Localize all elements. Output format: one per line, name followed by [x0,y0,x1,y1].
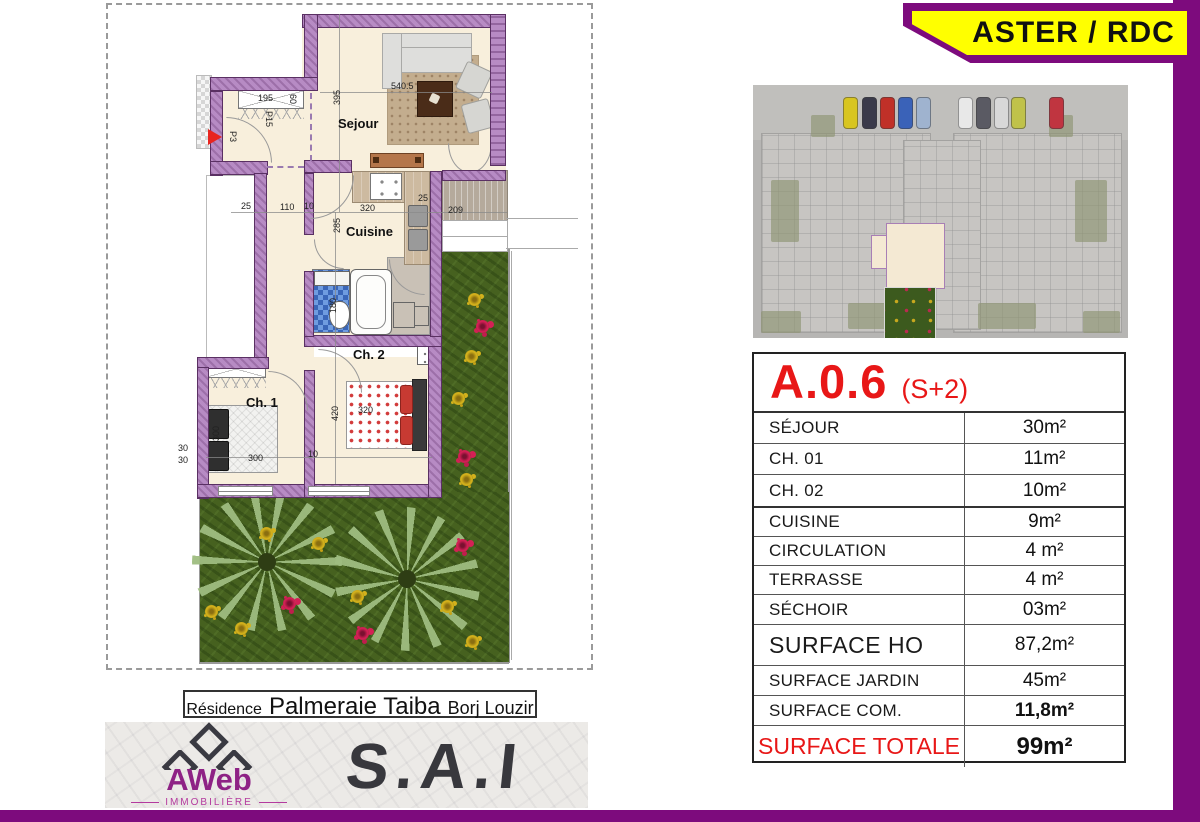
parked-car [862,97,877,129]
surface-row-value: 10m² [965,475,1124,506]
wall [304,160,352,173]
parked-car [916,97,931,129]
parked-car [898,97,913,129]
site-plan-green [761,311,801,333]
room-label: Ch. 1 [246,395,278,410]
dimension-label: 320 [360,203,375,213]
bathtub [350,269,392,335]
dimension-line [339,14,340,212]
unit-suffix: (S+2) [901,374,968,405]
wall [197,367,209,499]
unit-number: A.0.6 [770,356,887,408]
surface-row: SÉCHOIR03m² [754,595,1124,625]
site-plan-green [771,180,799,242]
surface-row-label: TERRASSE [754,566,965,594]
aweb-wordmark: AWeb [119,764,299,795]
site-plan-green [811,115,835,137]
site-plan-green [978,303,1036,329]
wall [428,335,442,498]
residence-title: Résidence Palmeraie Taiba Borj Louzir [183,690,537,718]
dimension-line [335,212,336,484]
aweb-subtitle: IMMOBILIÈRE [119,797,299,808]
surface-row: CH. 0111m² [754,444,1124,475]
surface-row-label: CH. 02 [754,475,965,506]
coffee-table [417,81,453,117]
surface-row-value: 11m² [965,444,1124,474]
terrace-steps [442,220,508,252]
surface-row-value: 45m² [965,666,1124,695]
surface-row: SURFACE HO87,2m² [754,625,1124,666]
flower [260,527,273,540]
dimension-label: 285 [332,218,342,233]
wall [490,14,506,166]
parked-car [958,97,973,129]
opening-dashed [267,166,304,168]
dimension-label: P3 [228,131,238,142]
room-label: Ch. 2 [353,347,385,362]
pillow [208,441,229,471]
surface-row: TERRASSE4 m² [754,566,1124,595]
bottom-frame-bar [0,810,1200,822]
dimension-label: 300 [248,453,263,463]
window [308,486,370,496]
flower [351,590,364,603]
site-plan-unit-garden [884,287,936,338]
site-plan [753,85,1128,338]
dimension-label: 30 [178,455,188,465]
surface-row: SURFACE COM.11,8m² [754,696,1124,726]
wall [254,173,267,365]
parked-car [843,97,858,129]
stove [370,173,402,200]
flower [356,627,369,640]
surface-row-label: CH. 01 [754,444,965,474]
dimension-label: 110 [280,202,294,212]
surface-row: SURFACE TOTALE99m² [754,726,1124,767]
surface-row-label: SÉJOUR [754,413,965,443]
surface-row-value: 4 m² [965,566,1124,594]
surface-row: SURFACE JARDIN45m² [754,666,1124,696]
sai-wordmark: S.A.I [286,724,585,808]
plan-type-banner: ASTER / RDC [903,3,1196,63]
surface-row-value: 9m² [965,508,1124,536]
right-frame-bar [1173,0,1200,822]
parked-car [1049,97,1064,129]
dimension-label: 60 [288,94,298,104]
wall [302,14,505,28]
flower [458,450,471,463]
flower [235,622,248,635]
surface-row: SÉJOUR30m² [754,413,1124,444]
dimension-label: 25 [241,201,251,211]
surface-row-label: SURFACE COM. [754,696,965,725]
washing-machine [393,302,415,328]
surface-table: A.0.6 (S+2) SÉJOUR30m²CH. 0111m²CH. 0210… [752,352,1126,763]
parked-car [994,97,1009,129]
wall [304,370,315,498]
surface-row-label: CIRCULATION [754,537,965,565]
walkway-line [506,218,578,219]
dimension-label: 300 [211,426,221,441]
flower [452,392,465,405]
wall [442,170,506,181]
dimension-label: 30 [178,443,188,453]
surface-row-value: 11,8m² [965,696,1124,725]
unit-title-row: A.0.6 (S+2) [754,354,1124,413]
residence-prefix: Résidence [186,701,262,719]
site-plan-unit-highlight [886,223,945,289]
parked-car [1011,97,1026,129]
surface-row-value: 99m² [965,726,1124,767]
dimension-label: 540.5 [391,81,414,91]
dimension-label: 180 [328,298,338,313]
window [218,486,273,496]
garden-path-line [511,251,512,660]
wall [304,271,314,337]
flower [205,605,218,618]
residence-suffix: Borj Louzir [448,698,534,719]
site-plan-green [1083,311,1120,333]
brochure-page: ASTER / RDC A.0.6 (S+2) SÉJOUR30m²CH. 01… [0,0,1200,822]
wall [210,77,318,91]
flower [466,635,479,648]
floor-plan: SejourCuisineCh. 2Ch. 119560P15P3395540.… [106,3,593,670]
pillow [400,385,413,414]
walkway-line [506,248,578,249]
entrance-arrow [208,129,222,145]
flower [468,293,481,306]
bathroom-sink [314,271,350,286]
bed-ch2-headboard [412,379,427,451]
dimension-label: 10 [308,449,318,459]
parked-car [976,97,991,129]
flower [441,600,454,613]
opening-dashed [310,93,312,161]
banner-label: ASTER / RDC [924,16,1175,50]
surface-row-value: 87,2m² [965,625,1124,665]
aweb-logo: AWeb IMMOBILIÈRE [119,724,299,808]
residence-name: Palmeraie Taiba [269,693,441,721]
dimension-label: P15 [264,111,274,127]
surface-row-label: SURFACE HO [754,625,965,665]
console-bench [370,153,424,168]
flower [283,597,296,610]
room-label: Sejour [338,116,378,131]
dimension-label: 420 [330,406,340,421]
surface-row-label: CUISINE [754,508,965,536]
surface-row-value: 4 m² [965,537,1124,565]
surface-row-label: SURFACE JARDIN [754,666,965,695]
washing-machine [414,306,429,326]
surface-row: CIRCULATION4 m² [754,537,1124,566]
dimension-label: 209 [448,205,463,215]
pillow [400,416,413,445]
wall [430,171,442,337]
surface-row-value: 30m² [965,413,1124,443]
surface-row: CH. 0210m² [754,475,1124,508]
flower [460,473,473,486]
room-label: Cuisine [346,224,393,239]
surface-row-label: SÉCHOIR [754,595,965,624]
dimension-line [206,457,432,458]
closet-hatch [206,378,266,388]
wall [304,335,442,347]
flower [476,320,489,333]
surface-row-value: 03m² [965,595,1124,624]
wall [304,14,318,82]
dimension-label: 195 [258,93,273,103]
dimension-label: 25 [418,193,428,203]
surface-rows: SÉJOUR30m²CH. 0111m²CH. 0210m²CUISINE9m²… [754,413,1124,767]
flower [456,539,469,552]
appliance-icon [408,229,428,251]
dimension-label: 395 [332,90,342,105]
surface-row-label: SURFACE TOTALE [754,726,965,767]
flower [312,537,325,550]
dimension-label: 320 [358,405,373,415]
surface-row: CUISINE9m² [754,508,1124,537]
flower [465,350,478,363]
site-plan-green [1075,180,1107,242]
dimension-line [320,92,492,93]
parked-car [880,97,895,129]
fridge-icon [408,205,428,227]
footer-logo-banner: AWeb IMMOBILIÈRE S.A.I [105,722,588,808]
dimension-label: 10 [304,201,314,211]
